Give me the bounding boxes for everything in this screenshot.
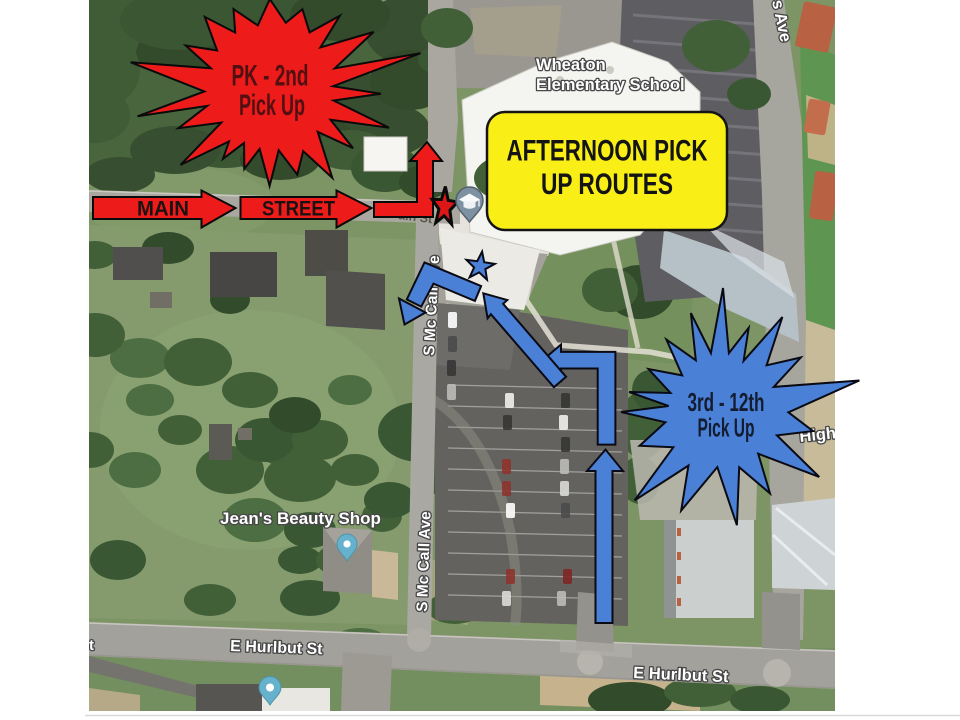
- svg-text:AFTERNOON PICK: AFTERNOON PICK: [507, 135, 708, 168]
- svg-text:PK - 2nd: PK - 2nd: [232, 60, 309, 93]
- svg-text:Pick Up: Pick Up: [698, 413, 755, 443]
- svg-text:S Mc Call Ave: S Mc Call Ave: [414, 511, 435, 612]
- svg-text:MAIN: MAIN: [137, 198, 189, 221]
- svg-text:t: t: [89, 637, 94, 654]
- svg-text:Wheaton: Wheaton: [536, 56, 606, 74]
- svg-text:STREET: STREET: [262, 198, 335, 221]
- svg-text:Jean's Beauty Shop: Jean's Beauty Shop: [220, 509, 381, 528]
- svg-text:Pick Up: Pick Up: [239, 89, 305, 122]
- svg-text:Elementary School: Elementary School: [536, 76, 685, 94]
- svg-text:E Hurlbut St: E Hurlbut St: [230, 638, 324, 658]
- svg-text:UP ROUTES: UP ROUTES: [541, 168, 673, 201]
